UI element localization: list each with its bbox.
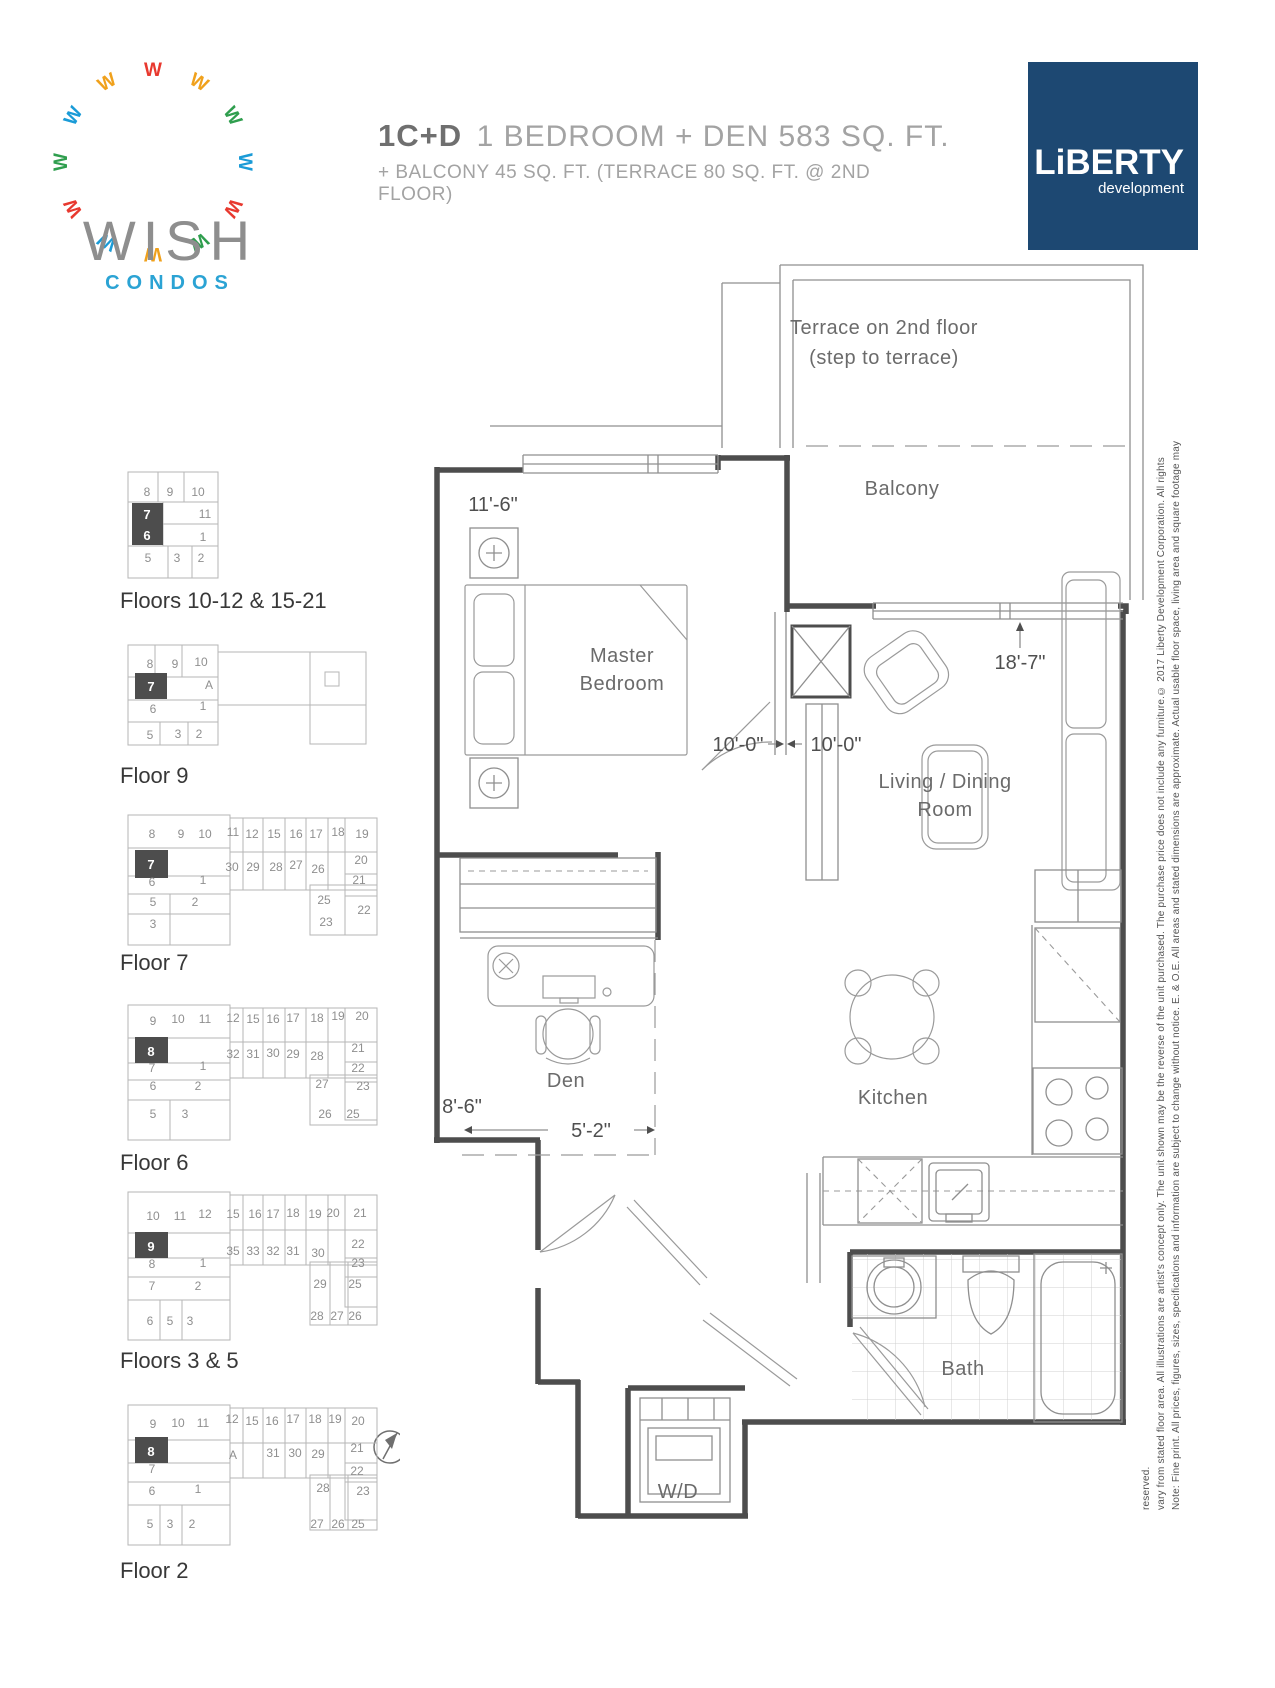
key-plan-floor-9: 8910A615327Floor 9 (120, 645, 366, 788)
unit-number: 11 (174, 1209, 187, 1223)
unit-number: 31 (246, 1047, 260, 1061)
unit-description: 1 BEDROOM + DEN 583 SQ. FT. (477, 120, 950, 153)
logo-w-glyph: W (60, 103, 88, 130)
unit-number: 12 (225, 1412, 239, 1426)
developer-logo: LiBERTY development (1028, 62, 1198, 250)
living-dining-label-2: Room (917, 799, 972, 821)
unit-number: 9 (167, 485, 174, 499)
brand-name: WISH (60, 208, 280, 273)
unit-number: 8 (149, 827, 156, 841)
key-plan-floors-3-5-label: Floors 3 & 5 (120, 1348, 239, 1373)
dimension-arrows (464, 622, 1024, 1134)
unit-number: 3 (182, 1107, 189, 1121)
unit-number: 15 (226, 1207, 240, 1221)
bath-label: Bath (941, 1358, 984, 1380)
logo-w-glyph: W (94, 69, 121, 97)
unit-number: 29 (313, 1277, 327, 1291)
unit-number: 32 (226, 1047, 240, 1061)
unit-number: 26 (318, 1107, 332, 1121)
unit-number: 2 (195, 1079, 202, 1093)
den-furniture (462, 940, 655, 1155)
dim-hall-right: 10'-0" (811, 734, 862, 756)
unit-number: 9 (172, 657, 179, 671)
unit-number: 7 (149, 1061, 156, 1075)
living-dining-label: Living / Dining (878, 771, 1011, 793)
unit-number: 17 (286, 1011, 300, 1025)
unit-number: 18 (331, 825, 345, 839)
unit-number: 1 (200, 1059, 207, 1073)
unit-number: 10 (194, 655, 208, 669)
laundry-label: W/D (658, 1481, 698, 1503)
window-band (490, 426, 1123, 619)
unit-number: 10 (171, 1416, 185, 1430)
key-plan-floors-3-5: 1011121516171819202135333231302281237229… (120, 1192, 377, 1373)
logo-w-glyph: W (233, 153, 255, 171)
dim-master-width: 11'-6" (468, 494, 517, 516)
logo-w-glyph: W (185, 69, 212, 97)
unit-number: 12 (198, 1207, 212, 1221)
highlighted-unit-number: 6 (143, 528, 150, 543)
unit-number: 7 (149, 1279, 156, 1293)
unit-number: 19 (328, 1412, 342, 1426)
brand-tagline: CONDOS (60, 272, 280, 295)
unit-number: 1 (200, 699, 207, 713)
master-bedroom-label-2: Bedroom (580, 673, 665, 695)
unit-number: 2 (196, 727, 203, 741)
highlighted-unit-number: 8 (147, 1444, 154, 1459)
entry-doors (540, 1173, 820, 1386)
highlighted-unit-number: 9 (147, 1239, 154, 1254)
unit-number: 9 (178, 827, 185, 841)
developer-name: LiBERTY (1028, 146, 1184, 180)
terrace-label: Terrace on 2nd floor (790, 317, 978, 339)
unit-number: 3 (175, 727, 182, 741)
unit-number: 8 (149, 1257, 156, 1271)
nightstand-icon (470, 528, 518, 808)
highlighted-unit-number: 8 (147, 1044, 154, 1059)
unit-number: A (205, 678, 213, 692)
unit-number: 28 (316, 1481, 330, 1495)
unit-number: 26 (311, 862, 325, 876)
unit-number: 2 (189, 1517, 196, 1531)
unit-number: A (229, 1448, 237, 1462)
highlighted-unit-number: 7 (147, 679, 154, 694)
key-plan-floor-2: 9101112151617181920A31302921722612823532… (120, 1405, 377, 1583)
unit-number: 5 (150, 895, 157, 909)
unit-number: 29 (246, 860, 260, 874)
dim-hall-left: 10'-0" (713, 734, 764, 756)
unit-number: 26 (331, 1517, 345, 1531)
living-furniture (858, 572, 1120, 890)
unit-number: 11 (197, 1416, 210, 1430)
unit-number: 33 (246, 1244, 260, 1258)
unit-number: 3 (150, 917, 157, 931)
unit-number: 31 (286, 1244, 300, 1258)
unit-number: 11 (227, 825, 240, 839)
unit-number: 8 (144, 485, 151, 499)
unit-number: 8 (147, 657, 154, 671)
unit-number: 31 (266, 1446, 280, 1460)
logo-w-glyph: W (144, 60, 162, 82)
floor-plan: Terrace on 2nd floor (step to terrace) B… (360, 250, 1160, 1540)
unit-number: 6 (149, 1484, 156, 1498)
unit-number: 5 (145, 551, 152, 565)
unit-number: 30 (225, 860, 239, 874)
unit-number: 18 (310, 1011, 324, 1025)
unit-number: 17 (309, 827, 323, 841)
floorplan-page: { "brand": { "name": "WISH", "tagline": … (0, 0, 1275, 1688)
unit-number: 17 (266, 1207, 280, 1221)
terrace-label-2: (step to terrace) (809, 347, 959, 369)
dim-den-depth: 8'-6" (442, 1096, 482, 1118)
key-plans-column: 891011153276Floors 10-12 & 15-218910A615… (100, 440, 400, 1600)
unit-number: 7 (149, 1462, 156, 1476)
unit-number: 1 (200, 873, 207, 887)
dim-living-length: 18'-7" (995, 652, 1046, 674)
unit-number: 10 (191, 485, 205, 499)
unit-number: 35 (226, 1244, 240, 1258)
bed (465, 585, 687, 755)
highlighted-unit-number: 7 (147, 857, 154, 872)
unit-number: 30 (311, 1246, 325, 1260)
developer-sub: development (1028, 180, 1184, 197)
unit-number: 2 (195, 1279, 202, 1293)
unit-number: 15 (267, 827, 281, 841)
unit-number: 2 (192, 895, 199, 909)
unit-number: 15 (245, 1414, 259, 1428)
key-plan-floor-6: 9101112151617181920323130292821712262272… (120, 1005, 377, 1175)
unit-number: 5 (167, 1314, 174, 1328)
unit-number: 27 (315, 1077, 329, 1091)
unit-number: 15 (246, 1012, 260, 1026)
kitchen-fixtures (823, 870, 1123, 1225)
dim-den-width: 5'-2" (571, 1120, 611, 1142)
unit-number: 28 (269, 860, 283, 874)
unit-number: 27 (330, 1309, 344, 1323)
unit-number: 11 (199, 1012, 212, 1026)
unit-number: 17 (286, 1412, 300, 1426)
unit-number: 2 (198, 551, 205, 565)
unit-number: 16 (248, 1207, 262, 1221)
unit-number: 29 (311, 1447, 325, 1461)
unit-title-block: 1C+D 1 BEDROOM + DEN 583 SQ. FT. + BALCO… (378, 118, 938, 206)
logo-w-glyph: W (51, 153, 73, 171)
unit-number: 30 (266, 1046, 280, 1060)
unit-number: 12 (245, 827, 259, 841)
unit-number: 23 (319, 915, 333, 929)
unit-code: 1C+D (378, 118, 462, 153)
unit-number: 27 (310, 1517, 324, 1531)
unit-number: 32 (266, 1244, 280, 1258)
unit-number: 16 (289, 827, 303, 841)
unit-number: 1 (195, 1482, 202, 1496)
unit-number: 29 (286, 1047, 300, 1061)
key-plan-floors-10-21-label: Floors 10-12 & 15-21 (120, 588, 327, 613)
disclaimer-text: Note: Fine print. All prices, figures, s… (1150, 425, 1184, 1510)
unit-number: 20 (326, 1206, 340, 1220)
key-plan-floors-10-21: 891011153276Floors 10-12 & 15-21 (120, 472, 327, 613)
unit-number: 25 (317, 893, 331, 907)
unit-number: 6 (147, 1314, 154, 1328)
key-plan-floor-9-label: Floor 9 (120, 763, 188, 788)
unit-number: 5 (150, 1107, 157, 1121)
unit-number: 1 (200, 1256, 207, 1270)
den-label: Den (547, 1070, 585, 1092)
unit-number: 25 (346, 1107, 360, 1121)
highlighted-unit-number: 7 (143, 507, 150, 522)
unit-number: 11 (199, 507, 212, 521)
unit-number: 10 (198, 827, 212, 841)
unit-number: 6 (150, 1079, 157, 1093)
unit-number: 28 (310, 1309, 324, 1323)
unit-number: 3 (187, 1314, 194, 1328)
kitchen-label: Kitchen (858, 1087, 928, 1109)
unit-number: 27 (289, 858, 303, 872)
unit-number: 12 (226, 1011, 240, 1025)
key-plan-floor-6-label: Floor 6 (120, 1150, 188, 1175)
unit-number: 5 (147, 728, 154, 742)
key-plan-floor-7-label: Floor 7 (120, 950, 188, 975)
key-plan-floor-2-label: Floor 2 (120, 1558, 188, 1583)
unit-number: 9 (150, 1417, 157, 1431)
logo-w-glyph: W (218, 103, 246, 130)
unit-subtitle: + BALCONY 45 SQ. FT. (TERRACE 80 SQ. FT.… (378, 162, 938, 206)
unit-number: 6 (150, 702, 157, 716)
unit-number: 6 (149, 875, 156, 889)
unit-number: 28 (310, 1049, 324, 1063)
unit-number: 16 (265, 1414, 279, 1428)
balcony-label: Balcony (865, 478, 940, 500)
bath-fixtures (852, 1254, 1122, 1422)
unit-number: 3 (174, 551, 181, 565)
unit-number: 10 (171, 1012, 185, 1026)
unit-number: 19 (308, 1207, 322, 1221)
unit-number: 1 (200, 530, 207, 544)
unit-number: 18 (308, 1412, 322, 1426)
unit-number: 5 (147, 1517, 154, 1531)
master-bedroom-label: Master (590, 645, 654, 667)
unit-number: 10 (146, 1209, 160, 1223)
closet (460, 858, 656, 932)
key-plan-floor-7: 8910111215161718193029282726206121522522… (120, 815, 377, 975)
unit-number: 3 (167, 1517, 174, 1531)
unit-number: 18 (286, 1206, 300, 1220)
unit-number: 16 (266, 1012, 280, 1026)
unit-number: 30 (288, 1446, 302, 1460)
unit-number: 19 (331, 1009, 345, 1023)
wish-brand: WWWWWWWWWWWW WISH CONDOS (60, 50, 280, 260)
unit-number: 9 (150, 1014, 157, 1028)
